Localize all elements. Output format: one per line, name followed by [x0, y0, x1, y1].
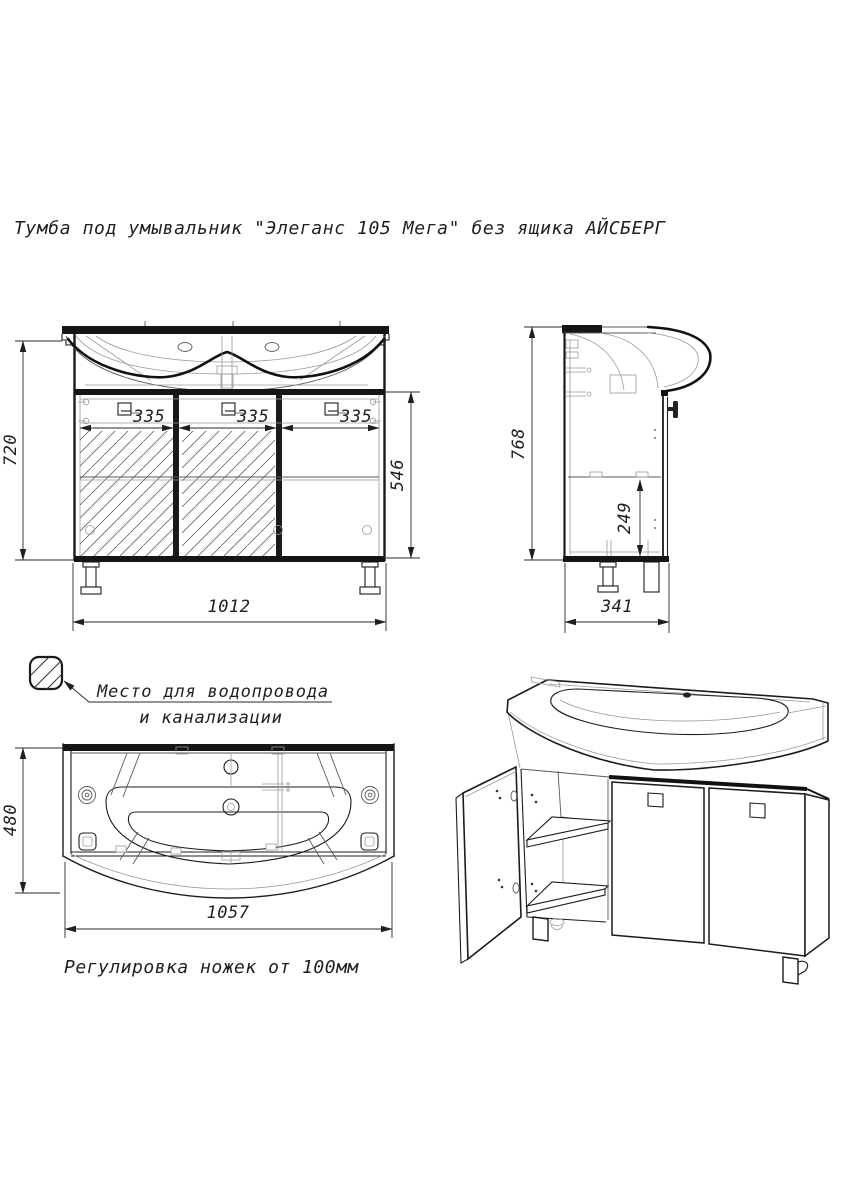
svg-text:249: 249: [615, 502, 635, 534]
plumbing-area-icon: [30, 657, 62, 689]
corner-wedges: [111, 753, 346, 864]
dim-depth-480: 480: [1, 748, 63, 893]
technical-drawing-page: Тумба под умывальник "Элеганс 105 Мега" …: [0, 0, 849, 1200]
legs-note: Регулировка ножек от 100мм: [64, 957, 359, 978]
legend-line2: и канализации: [139, 708, 282, 728]
sink-perspective: [507, 677, 828, 770]
door-handle-icon: [648, 793, 663, 807]
sink-front-silhouette: [66, 336, 385, 391]
drain-trap: [550, 919, 564, 926]
leg: [81, 562, 101, 594]
dim-door3-label: 335: [339, 407, 372, 427]
legend: Место для водопровода и канализации: [24, 650, 332, 728]
overflow-hole: [265, 343, 279, 352]
page-title: Тумба под умывальник "Элеганс 105 Мега" …: [14, 217, 666, 239]
drain-hole: [223, 799, 239, 815]
hatched-door-middle: [182, 431, 275, 557]
leg: [360, 562, 380, 594]
dim-shelf-249: 249: [615, 480, 640, 556]
dim-door-height-546: 546: [386, 392, 420, 558]
leg: [783, 957, 798, 984]
door-handle-icon: [750, 803, 765, 818]
svg-text:768: 768: [509, 428, 529, 460]
legend-line1: Место для водопровода: [96, 682, 329, 702]
counter-front-curve: [63, 856, 394, 898]
svg-text:1012: 1012: [208, 597, 251, 617]
side-handle-icon: [667, 401, 678, 418]
overflow-hole: [178, 343, 192, 352]
fitting-marks: [116, 783, 289, 854]
svg-text:341: 341: [600, 597, 633, 617]
vanity-technical-drawing: Тумба под умывальник "Элеганс 105 Мега" …: [0, 0, 849, 1200]
hatched-door-left: [80, 431, 173, 557]
leg: [644, 562, 659, 592]
side-view: 768 249 341: [509, 325, 710, 633]
dim-width-1012: 1012: [73, 563, 386, 631]
leg: [533, 917, 548, 941]
open-door: [456, 767, 521, 963]
dim-height-768: 768: [509, 327, 563, 560]
perspective-view: [456, 677, 829, 984]
svg-text:720: 720: [1, 434, 21, 466]
dim-height-720: 720: [1, 341, 74, 560]
front-view: 335 335 335: [1, 321, 420, 631]
plan-view: 480 1057: [1, 744, 394, 938]
dim-door2-label: 335: [236, 407, 269, 427]
cabinet-interior: [521, 769, 610, 930]
dim-door1-label: 335: [132, 407, 165, 427]
side-panel: [805, 794, 829, 956]
leg: [598, 562, 618, 592]
dim-width-1057: 1057: [65, 862, 392, 938]
svg-text:1057: 1057: [207, 903, 250, 923]
svg-text:480: 480: [1, 804, 21, 836]
svg-text:546: 546: [388, 459, 408, 491]
dowel-dots: [654, 429, 656, 529]
faucet-hole: [683, 692, 691, 697]
